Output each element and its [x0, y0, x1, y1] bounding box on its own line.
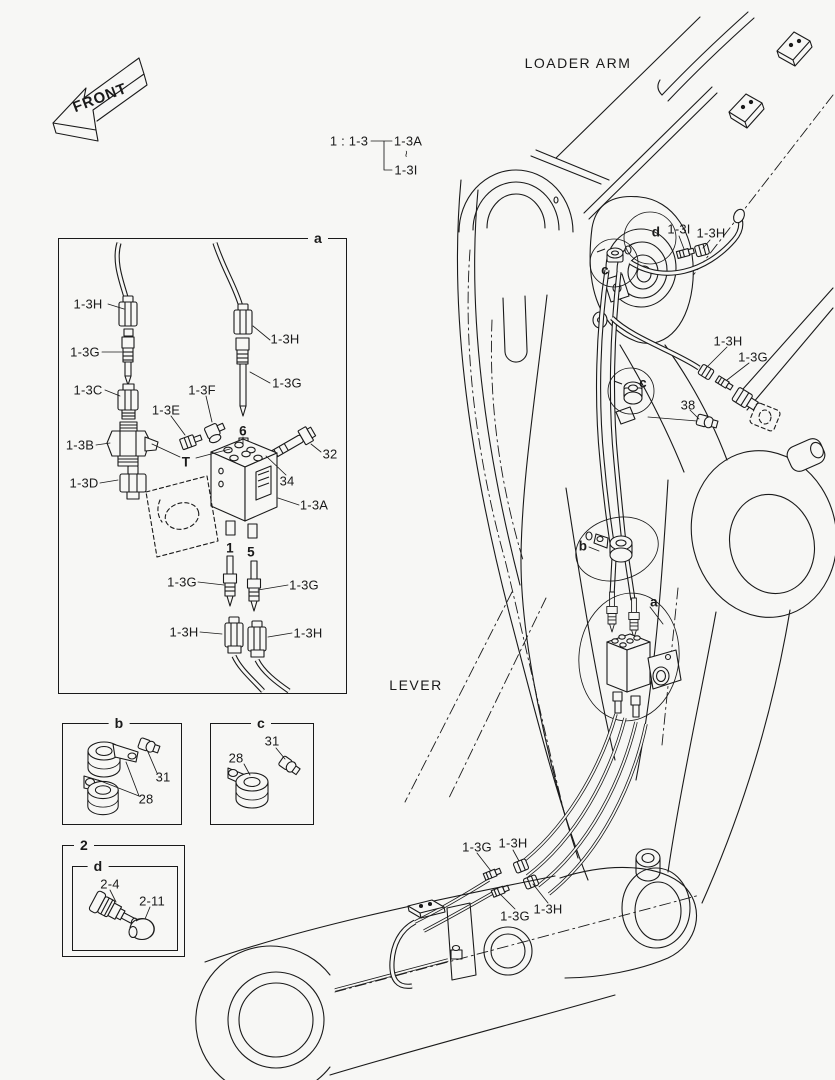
part-label-1-3H: 1-3H	[534, 903, 563, 916]
part-label-1-3G: 1-3G	[738, 351, 768, 364]
part-label-1-3H: 1-3H	[271, 333, 300, 346]
part-label-1-3G: 1-3G	[500, 910, 530, 923]
port-label-1: 1	[226, 541, 234, 555]
part-label-1-3F: 1-3F	[188, 384, 216, 397]
detail-box-d-tag: d	[88, 859, 109, 873]
callout-label-d: d	[652, 225, 660, 239]
part-label-1-3H: 1-3H	[697, 227, 726, 240]
port-label-5: 5	[247, 545, 255, 559]
detail-box-d	[72, 866, 178, 951]
part-label-1-3G: 1-3G	[167, 576, 197, 589]
part-label-1-3A: 1-3A	[300, 499, 328, 512]
callout-label-b: b	[579, 539, 587, 553]
part-label-1-3H: 1-3H	[499, 837, 528, 850]
port-label-6: 6	[239, 424, 247, 438]
part-label-1-3H: 1-3H	[74, 298, 103, 311]
lever-caption: LEVER	[389, 678, 442, 692]
reference-assembly: 1 : 1-3	[330, 135, 368, 148]
detail-box-b-tag: b	[109, 716, 130, 730]
reference-bracket	[371, 141, 392, 170]
part-label-31: 31	[156, 771, 171, 784]
detail-box-2-tag: 2	[74, 838, 94, 852]
loader-arm-caption: LOADER ARM	[525, 56, 632, 70]
detail-box-c-tag: c	[251, 716, 271, 730]
reference-range-tilde: ~	[400, 150, 412, 157]
detail-box-a-tag: a	[308, 231, 328, 245]
part-label-1-3E: 1-3E	[152, 404, 180, 417]
part-label-2-4: 2-4	[100, 878, 119, 891]
part-label-1-3H: 1-3H	[294, 627, 323, 640]
parts-diagram-page: FRONT 1 : 1-3 1-3A ~ 1-3I LOADER ARM LEV…	[0, 0, 835, 1080]
part-label-1-3G: 1-3G	[272, 377, 302, 390]
part-label-1-3B: 1-3B	[66, 439, 94, 452]
callout-label-a: a	[650, 595, 658, 609]
part-label-1-3G: 1-3G	[289, 579, 319, 592]
detail-box-c	[210, 723, 314, 825]
port-label-T: T	[182, 455, 190, 469]
part-label-31: 31	[265, 735, 280, 748]
part-label-1-3I: 1-3I	[667, 223, 690, 236]
part-label-1-3G: 1-3G	[70, 346, 100, 359]
part-label-2-11: 2-11	[139, 895, 165, 908]
callout-label-c: c	[601, 263, 609, 277]
callout-label-c: c	[639, 376, 647, 390]
part-label-32: 32	[323, 448, 338, 461]
reference-range-first: 1-3A	[394, 135, 422, 148]
part-label-34: 34	[280, 475, 295, 488]
part-label-1-3H: 1-3H	[714, 335, 743, 348]
part-label-1-3C: 1-3C	[74, 384, 103, 397]
part-label-28: 28	[139, 793, 154, 806]
part-label-1-3D: 1-3D	[70, 477, 99, 490]
part-label-1-3H: 1-3H	[170, 626, 199, 639]
part-label-28: 28	[229, 752, 244, 765]
reference-range-last: 1-3I	[394, 164, 417, 177]
part-label-38: 38	[681, 399, 696, 412]
part-label-1-3G: 1-3G	[462, 841, 492, 854]
